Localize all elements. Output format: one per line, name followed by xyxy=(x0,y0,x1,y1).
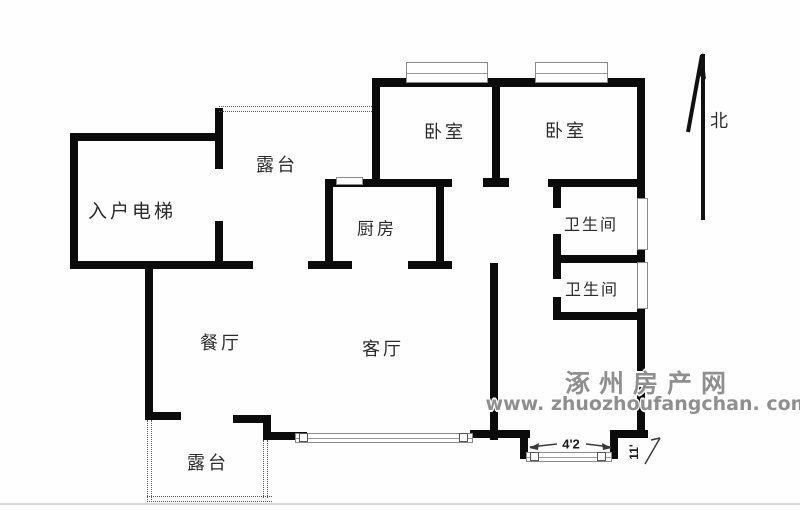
wall-bathrooms-top xyxy=(548,179,640,187)
room-label-terrace-upper: 露台 xyxy=(256,151,298,177)
bay-width-dimension-label: 4'2 xyxy=(562,437,580,452)
living-window-cap-right xyxy=(459,433,468,442)
terrace-lower-dashed-left xyxy=(147,420,152,500)
wall-bathroom1-left-a xyxy=(553,187,561,208)
wall-elevator-right-lower xyxy=(215,221,223,269)
terrace-upper-dashed-boundary xyxy=(219,106,372,112)
wall-bathroom2-left-a xyxy=(553,263,561,279)
wall-elevator-right-upper xyxy=(215,108,223,169)
bathroom1-window-icon xyxy=(637,198,648,250)
wall-dining-left xyxy=(145,268,153,418)
room-label-entry-elevator: 入户电梯 xyxy=(88,197,176,224)
room-label-living-room: 客厅 xyxy=(362,335,404,361)
room-label-bedroom-2: 卧室 xyxy=(545,117,587,143)
living-room-window-icon xyxy=(295,433,473,443)
wall-dining-bottom-left xyxy=(145,412,181,420)
wall-elevator-bottom xyxy=(70,261,253,269)
wall-stub-right-of-kitchen xyxy=(408,261,452,269)
image-bottom-edge xyxy=(0,503,800,505)
watermark-site-url: www. zhuozhoufangchan. com xyxy=(486,393,800,415)
bedroom1-window-icon xyxy=(406,62,488,83)
wall-elevator-left xyxy=(70,133,78,269)
bedroom2-window-icon xyxy=(535,62,608,83)
room-label-terrace-lower: 露台 xyxy=(187,449,229,475)
bathroom2-window-icon xyxy=(637,262,648,309)
bay-window-cap-right xyxy=(597,452,606,461)
wall-bedroom-divider-foot xyxy=(483,178,509,187)
bay-depth-dimension-label: 11' xyxy=(627,444,641,460)
room-label-dining-room: 餐厅 xyxy=(200,329,242,355)
wall-elevator-top xyxy=(70,133,222,141)
wall-kitchen-left xyxy=(325,179,333,269)
bay-window-cap-left xyxy=(530,452,539,461)
room-label-kitchen: 厨房 xyxy=(357,215,397,240)
wall-living-bottom-right xyxy=(470,430,530,438)
terrace-lower-dashed-bottom xyxy=(147,496,272,502)
wall-bedroom1-left xyxy=(372,83,380,187)
north-label: 北 xyxy=(710,107,728,133)
terrace-lower-dashed-right xyxy=(263,440,268,498)
wall-bathrooms-bottom xyxy=(553,312,645,320)
wall-bathroom-divider xyxy=(553,255,640,263)
wall-bay-top-right xyxy=(610,430,648,438)
kitchen-window-icon xyxy=(336,177,363,185)
wall-bedroom-divider xyxy=(492,83,500,183)
floor-plan: 入户电梯 露台 卧室 卧室 厨房 卫生间 卫生间 餐厅 客厅 露台 北 4'2 … xyxy=(0,0,800,510)
living-window-cap-left xyxy=(299,433,308,442)
room-label-bedroom-1: 卧室 xyxy=(424,118,466,144)
wall-kitchen-right xyxy=(436,179,444,269)
room-label-bathroom-2: 卫生间 xyxy=(565,276,619,300)
room-label-bathroom-1: 卫生间 xyxy=(564,211,618,235)
